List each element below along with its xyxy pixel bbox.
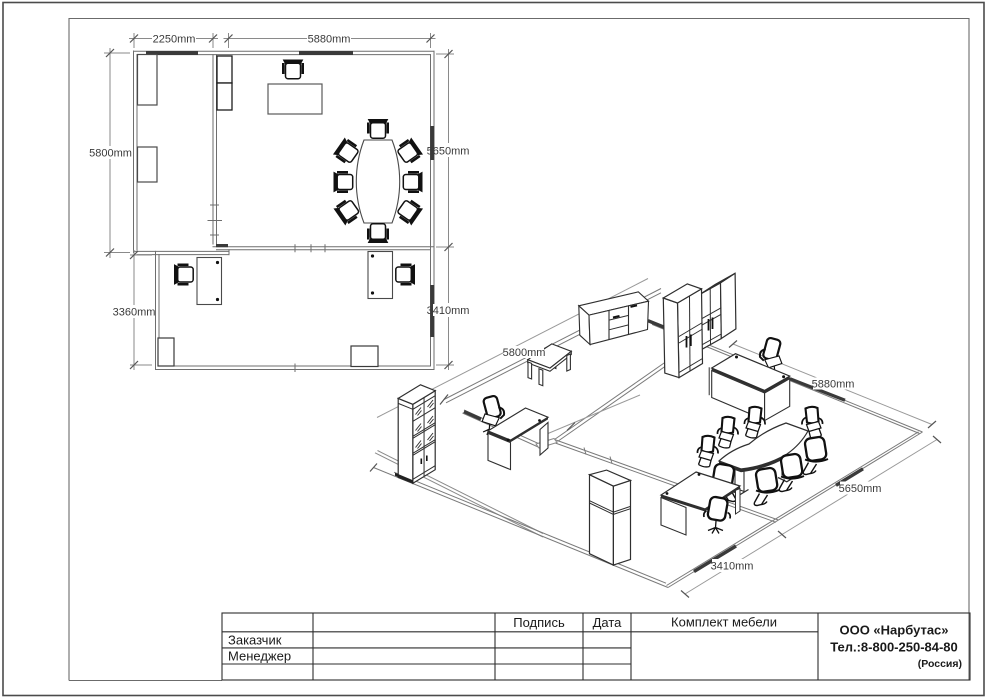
svg-text:Менеджер: Менеджер (228, 649, 291, 664)
svg-text:Дата: Дата (593, 615, 623, 630)
svg-text:3410mm: 3410mm (427, 305, 470, 317)
svg-text:5650mm: 5650mm (427, 146, 470, 158)
svg-text:Заказчик: Заказчик (228, 633, 282, 648)
svg-text:5880mm: 5880mm (308, 34, 351, 46)
svg-text:(Россия): (Россия) (918, 658, 962, 670)
svg-text:5650mm: 5650mm (839, 483, 882, 495)
svg-text:Комплект мебели: Комплект мебели (671, 615, 777, 630)
svg-text:3410mm: 3410mm (711, 561, 754, 573)
svg-text:5880mm: 5880mm (812, 379, 855, 391)
svg-text:2250mm: 2250mm (153, 34, 196, 46)
svg-text:ООО «Нарбутас»: ООО «Нарбутас» (839, 623, 948, 638)
svg-text:5800mm: 5800mm (503, 347, 546, 359)
svg-text:Подпись: Подпись (513, 615, 565, 630)
svg-text:Тел.:8-800-250-84-80: Тел.:8-800-250-84-80 (830, 640, 958, 655)
svg-text:5800mm: 5800mm (89, 148, 132, 160)
svg-text:3360mm: 3360mm (113, 307, 156, 319)
